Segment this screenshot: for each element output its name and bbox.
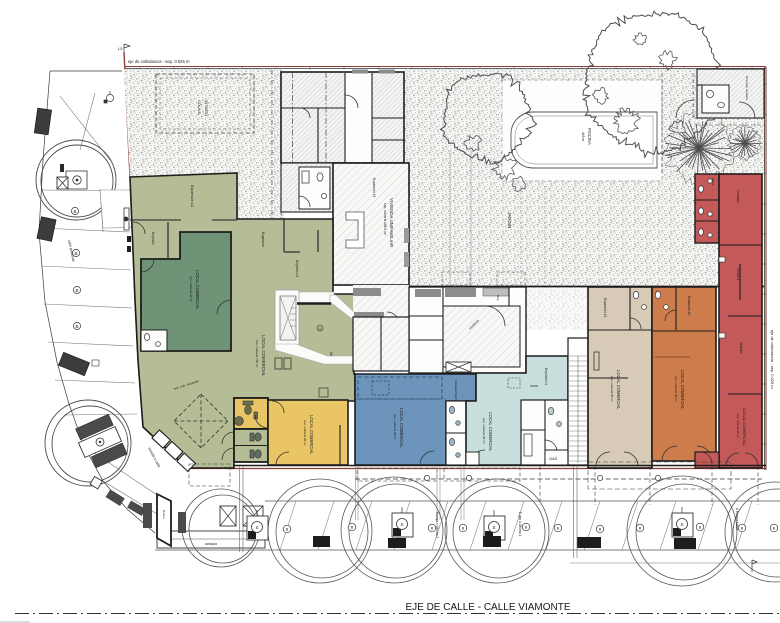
svg-text:Expansión: Expansión [261,232,265,247]
svg-text:L5: L5 [118,46,123,51]
svg-text:S: S [255,525,258,530]
svg-text:Depósito: Depósito [151,232,155,245]
svg-text:LOCAL COMERCIAL: LOCAL COMERCIAL [195,270,200,310]
svg-text:sup. cubierta 740 m²: sup. cubierta 740 m² [255,340,259,367]
svg-text:sup. cubierta 80 m²: sup. cubierta 80 m² [736,414,740,438]
svg-text:Office: Office [711,178,715,186]
svg-text:Cocina k: Cocina k [736,268,740,281]
svg-text:LOCAL COMERCIAL: LOCAL COMERCIAL [399,408,404,448]
svg-text:B: B [462,526,465,531]
svg-text:G: G [319,327,322,331]
svg-text:sup. cubierta 95 m²: sup. cubierta 95 m² [303,420,307,446]
svg-text:sup. cubierta 88 m²: sup. cubierta 88 m² [610,376,614,402]
svg-text:sup. cubierta 90 m²: sup. cubierta 90 m² [674,376,678,402]
svg-text:Expansión L3: Expansión L3 [190,185,194,207]
svg-text:B: B [741,526,744,531]
svg-text:LOCAL COMERCIAL: LOCAL COMERCIAL [680,370,685,410]
svg-text:Expansión L3: Expansión L3 [372,178,376,198]
svg-text:Dep: Dep [496,295,500,301]
svg-text:GAS: GAS [549,456,558,461]
svg-text:LOCAL COMERCIAL: LOCAL COMERCIAL [616,370,621,410]
svg-text:B: B [431,526,434,531]
svg-text:E gas a Oficina 1: E gas a Oficina 1 [518,512,522,537]
svg-text:acequia: acequia [205,542,217,546]
svg-text:B: B [525,525,528,530]
svg-text:A Rampa futura: A Rampa futura [735,508,739,530]
svg-text:eje de colindancia - sep. 0.02: eje de colindancia - sep. 0.025 m [128,59,190,64]
svg-text:Expansión L5: Expansión L5 [603,298,607,318]
svg-text:JARDIN: JARDIN [507,212,512,228]
svg-text:kiosco: kiosco [162,510,166,519]
svg-text:Expansión L6: Expansión L6 [687,296,691,316]
svg-text:B: B [699,525,702,530]
svg-text:sup. cubierta 92 m²: sup. cubierta 92 m² [189,276,193,302]
svg-text:B: B [351,525,354,530]
svg-text:Vestidor: Vestidor [739,342,743,354]
svg-text:Depósito L3: Depósito L3 [295,260,299,277]
svg-text:COLIND.: COLIND. [197,100,201,115]
svg-text:B: B [557,526,560,531]
svg-text:sup. cubierta 98 m²: sup. cubierta 98 m² [482,418,486,444]
svg-text:S: S [400,522,403,527]
svg-text:LOCAL COMERCIAL: LOCAL COMERCIAL [261,335,266,377]
svg-text:LOCAL COMERCIAL: LOCAL COMERCIAL [309,415,314,455]
svg-text:B: B [73,209,76,214]
svg-text:LOCAL COMERCIAL: LOCAL COMERCIAL [742,408,747,447]
svg-text:B: B [639,526,642,531]
svg-text:sup. cubierta 186.3 m²: sup. cubierta 186.3 m² [383,203,387,235]
svg-text:Depósito L4: Depósito L4 [544,368,548,385]
svg-text:B: B [75,324,78,329]
svg-text:EJE DE CALLE - CALLE VIAMONTE: EJE DE CALLE - CALLE VIAMONTE [405,602,570,613]
svg-text:B: B [75,288,78,293]
svg-text:S: S [492,525,495,530]
svg-text:B: B [773,526,776,531]
svg-text:PISCINA: PISCINA [587,128,592,145]
svg-text:LOCAL COMERCIAL: LOCAL COMERCIAL [488,412,493,452]
svg-text:Rampa s Oficina 2: Rampa s Oficina 2 [435,512,439,538]
svg-text:35 PATIO: 35 PATIO [204,100,208,116]
svg-text:4x9 m: 4x9 m [581,132,585,141]
svg-text:eje de colindancia - sep. 0.02: eje de colindancia - sep. 0.025 m [770,330,775,389]
svg-text:B: B [599,527,602,532]
svg-text:sup. cubierta 96 m²: sup. cubierta 96 m² [393,414,397,440]
svg-text:Comedor: Comedor [736,190,740,204]
svg-text:VIVIENDA UNIFAMILIAR: VIVIENDA UNIFAMILIAR [389,198,394,247]
svg-text:B: B [286,527,289,532]
svg-text:S: S [680,522,683,527]
svg-text:Dep bajo escalera: Dep bajo escalera [745,76,749,101]
